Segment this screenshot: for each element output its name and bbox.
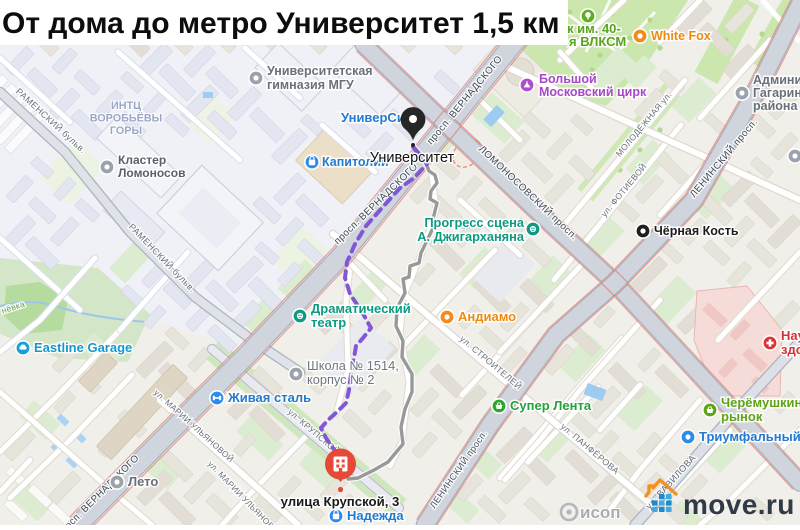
svg-text:Кластер: Кластер: [118, 153, 166, 167]
svg-text:района: района: [753, 99, 798, 113]
svg-text:Московский цирк: Московский цирк: [539, 85, 647, 99]
svg-text:Гагаринского: Гагаринского: [753, 86, 800, 100]
svg-text:От дома до метро Университет 1: От дома до метро Университет 1,5 км: [2, 7, 560, 40]
svg-text:ИНТЦ: ИНТЦ: [111, 100, 141, 112]
svg-text:White Fox: White Fox: [651, 29, 711, 43]
svg-text:Супер Лента: Супер Лента: [510, 398, 592, 413]
svg-text:Прогресс сцена: Прогресс сцена: [424, 215, 525, 230]
svg-text:Лето: Лето: [128, 474, 158, 489]
svg-text:move.ru: move.ru: [683, 489, 795, 520]
svg-text:Андиамо: Андиамо: [458, 309, 516, 324]
svg-text:Триумфальный: Триумфальный: [699, 429, 800, 444]
svg-text:Школа № 1514,: Школа № 1514,: [307, 358, 399, 373]
svg-text:Ломоносов: Ломоносов: [118, 166, 185, 180]
svg-text:Чёрная Кость: Чёрная Кость: [654, 224, 739, 238]
svg-text:А. Джигарханяна: А. Джигарханяна: [417, 229, 525, 244]
svg-text:Eastline Garage: Eastline Garage: [34, 340, 132, 355]
svg-text:здоровья: здоровья: [781, 342, 800, 357]
svg-text:Университетская: Университетская: [267, 64, 373, 78]
svg-text:театр: театр: [311, 315, 346, 330]
svg-text:корпус № 2: корпус № 2: [307, 372, 375, 387]
svg-text:рынок: рынок: [721, 409, 763, 424]
svg-text:Надежда: Надежда: [347, 508, 404, 523]
svg-text:Научный: Научный: [781, 328, 800, 343]
svg-text:я ВЛКСМ: я ВЛКСМ: [569, 34, 626, 49]
svg-text:улица Крупской, 3: улица Крупской, 3: [281, 494, 400, 509]
svg-text:Черёмушкинский: Черёмушкинский: [721, 395, 800, 410]
svg-text:исоп: исоп: [580, 503, 621, 522]
svg-text:Живая сталь: Живая сталь: [227, 390, 311, 405]
svg-text:ВОРОБЬЁВЫ: ВОРОБЬЁВЫ: [90, 112, 163, 125]
svg-text:Администрация: Администрация: [753, 73, 800, 87]
svg-text:Университет: Университет: [370, 150, 455, 166]
svg-text:ГОРЫ: ГОРЫ: [110, 125, 142, 137]
svg-text:Большой: Большой: [539, 72, 597, 86]
svg-text:Драматический: Драматический: [311, 301, 411, 316]
svg-text:гимназия МГУ: гимназия МГУ: [267, 78, 354, 92]
